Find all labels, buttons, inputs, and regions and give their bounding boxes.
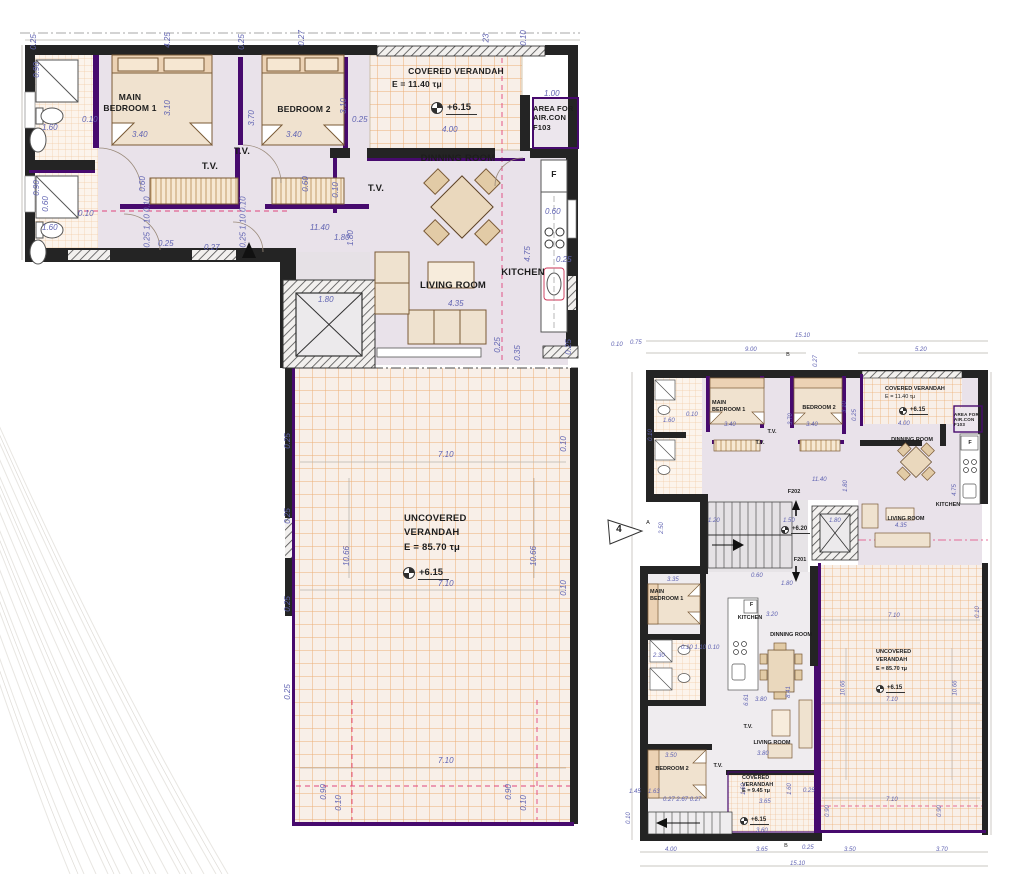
dim-label: 3.40	[132, 131, 148, 139]
left-plan-elevator-icon	[283, 280, 375, 368]
section-letter-a: A	[643, 520, 653, 527]
dim-label: 4.35	[448, 300, 464, 308]
dim-label: 7.10	[888, 613, 900, 619]
dim-label: 1.80	[781, 581, 793, 587]
right-plan-dim-lines	[632, 341, 991, 866]
sofa-icon	[375, 252, 486, 344]
right-plan-stairs-icon	[708, 502, 792, 568]
dim-label: 0.90	[937, 805, 943, 817]
dim-label: 3.40	[286, 131, 302, 139]
dim-label: 10.66	[343, 546, 351, 566]
dim-label: 1.80	[334, 234, 350, 242]
dim-label: 0.25	[352, 116, 368, 124]
dim-label: 0.25	[30, 34, 38, 50]
left-plan-bathroom-fixtures	[30, 60, 78, 264]
dim-label: 0.35	[514, 345, 522, 361]
dim-label: 8.41	[786, 686, 792, 698]
armchair-icon	[862, 504, 878, 528]
level-value: +6.15	[750, 817, 769, 825]
room-label-covered-verandah: COVERED VERANDAH	[885, 386, 963, 393]
dim-label: 4.00	[898, 421, 910, 427]
dim-label: 0.25	[238, 34, 246, 50]
dim-label: 7.10	[886, 797, 898, 803]
right-plan-walls	[640, 370, 988, 841]
level-icon	[403, 567, 415, 579]
right-plan-furniture-upper	[655, 378, 980, 547]
level-value: +6.15	[909, 407, 928, 415]
dim-label: 2.50	[659, 522, 665, 534]
dining-table-icon	[400, 145, 524, 269]
dim-label: 11.40	[812, 477, 827, 483]
dim-label: 0.27 2.67 0.27	[663, 797, 701, 803]
shower-icon	[655, 380, 675, 400]
stair-label-f202: F202	[781, 489, 807, 496]
dim-label: 3.50	[665, 753, 677, 759]
toilet-icon	[678, 646, 690, 655]
bed-icon	[648, 584, 700, 624]
dim-label: 3.50	[844, 847, 856, 853]
wardrobe-icon	[150, 178, 238, 204]
level-value: +6.15	[886, 685, 905, 693]
level-marker: +6.15	[740, 817, 769, 825]
dim-label: 1.80	[318, 296, 334, 304]
shower-icon	[650, 640, 672, 662]
dim-label: 1.80	[347, 230, 355, 246]
sofa-icon	[799, 700, 812, 748]
dim-label: 4.75	[952, 484, 958, 496]
dim-label: 0.10	[648, 429, 654, 441]
room-label-tv: T.V.	[748, 440, 772, 447]
right-plan-dims: 15.109.005.200.750.100.271.600.103.403.4…	[0, 0, 1024, 874]
room-label-main-bedroom-1: MAIN BEDROOM 1	[712, 400, 760, 413]
armchair-icon	[768, 744, 792, 758]
dim-label: 0.25 1.10 0.10	[144, 196, 152, 247]
left-plan-dims: 0.254.250.250.27230.101.000.901.600.103.…	[0, 0, 1024, 874]
bed-icon-bedroom2	[262, 55, 344, 145]
room-label-kitchen: KITCHEN	[928, 502, 968, 509]
dim-label: 10.66	[953, 680, 959, 695]
shower-icon	[36, 176, 78, 218]
dim-label: 1.60	[42, 124, 58, 132]
level-value: +6.15	[418, 567, 449, 580]
dim-label: 7.10	[438, 451, 454, 459]
dim-label: 0.25	[284, 433, 292, 449]
dim-label: 10.66	[841, 680, 847, 695]
dim-label: 23	[482, 34, 490, 43]
f201-arrow	[792, 566, 800, 582]
dim-label: 3.70	[788, 413, 794, 425]
toilet-icon	[36, 222, 63, 238]
room-label-aircon: AREA FOR AIR.CON F103	[533, 104, 585, 132]
dim-label: 0.60	[751, 573, 763, 579]
f202-arrow	[792, 500, 800, 516]
dim-label: 1.60	[42, 224, 58, 232]
dim-label: 0.25	[803, 788, 815, 794]
dim-label: 0.10	[520, 795, 528, 811]
fridge-icon	[961, 436, 978, 450]
level-icon	[781, 526, 789, 534]
dim-label: 0.25	[284, 684, 292, 700]
coffee-table-icon	[428, 262, 474, 288]
right-plan-elevator-icon	[812, 506, 858, 560]
room-label-living-room: LIVING ROOM	[398, 280, 508, 292]
dim-label: 0.90	[825, 805, 831, 817]
left-plan-labels: MAIN BEDROOM 1 BEDROOM 2 T.V. T.V. T.V. …	[0, 0, 1024, 874]
bed-icon	[710, 378, 764, 424]
washbasin-icon	[30, 128, 46, 152]
dim-label: 4.25	[164, 32, 172, 48]
room-label-tv: T.V.	[736, 724, 760, 731]
dim-label: 1.50	[783, 518, 795, 524]
dim-label: 3.40	[724, 422, 736, 428]
dim-label: 4.00	[442, 126, 458, 134]
shower-icon	[655, 440, 675, 460]
dim-label: 0.10	[560, 436, 568, 452]
dim-label: 0.10 1.10 0.10	[681, 645, 719, 651]
dim-label: 3.80	[757, 751, 769, 757]
dim-label: 0.90	[320, 784, 328, 800]
toilet-icon	[658, 406, 670, 415]
dim-label: 0.90	[33, 62, 41, 78]
wardrobe-icon	[272, 178, 344, 204]
dim-label: 0.10	[686, 412, 698, 418]
railing	[377, 348, 481, 357]
sink-icon	[963, 484, 976, 498]
room-label-bedroom-2: BEDROOM 2	[796, 405, 842, 412]
kitchen-counter	[541, 192, 567, 332]
room-label-bedroom-2: BEDROOM 2	[262, 104, 346, 115]
dim-label: 7.10	[438, 580, 454, 588]
left-plan-floors	[30, 50, 578, 824]
section-letter-b: B	[781, 843, 791, 850]
dim-label: 0.60	[302, 176, 310, 192]
floor-plan-canvas	[0, 0, 1024, 874]
room-label-tv: T.V.	[356, 183, 396, 195]
dim-label: 0.10	[560, 580, 568, 596]
dim-label: 1.00	[544, 90, 560, 98]
dim-label: 9.00	[745, 347, 757, 353]
sink-icon	[732, 664, 745, 680]
right-plan-floors	[646, 376, 982, 834]
room-label-living-room: LIVING ROOM	[742, 740, 802, 747]
stair-label-f201: F201	[787, 557, 813, 564]
room-label-covered-verandah: COVERED VERANDAH	[385, 66, 527, 77]
dim-label: 3.70	[248, 110, 256, 126]
room-label-covered-verandah: COVERED VERANDAH E = 9.45 τμ	[742, 775, 792, 795]
dim-label: 1.20	[708, 518, 720, 524]
dim-label: 1.80	[843, 480, 849, 492]
room-label-living-room: LIVING ROOM	[876, 516, 936, 523]
dim-label: 1.60	[663, 418, 675, 424]
dim-label: 1.80	[829, 518, 841, 524]
stove-icon	[545, 228, 564, 248]
fridge-label: F	[964, 440, 976, 447]
left-plan-furniture	[112, 55, 524, 357]
dim-label: 0.10	[520, 30, 528, 46]
coffee-table-icon	[886, 508, 914, 520]
dim-label: 15.10	[790, 861, 805, 867]
fridge-label: F	[746, 602, 757, 609]
level-value: +6.20	[791, 526, 810, 534]
kitchen-counter	[960, 434, 980, 504]
dim-label: 3.10	[340, 98, 348, 114]
toilet-icon	[658, 466, 670, 475]
dim-label: 7.10	[438, 757, 454, 765]
level-icon	[740, 817, 748, 825]
dim-label: 3.80	[755, 697, 767, 703]
level-marker-covered: +6.15	[431, 102, 477, 115]
bed-icon	[648, 750, 706, 798]
toilet-icon	[678, 674, 690, 683]
dim-label: 1.45	[629, 789, 641, 795]
dim-label: 15.10	[795, 333, 810, 339]
right-plan-entry-stairs-icon	[648, 812, 732, 834]
dim-label: 0.25	[852, 409, 858, 421]
fridge-icon	[744, 600, 757, 613]
dining-table-icon	[886, 432, 945, 491]
dim-label: 0.10	[78, 210, 94, 218]
dim-label: 3.10	[164, 100, 172, 116]
dim-label: 10.66	[530, 546, 538, 566]
right-plan-centerlines	[820, 540, 988, 806]
dim-label: 0.25	[284, 596, 292, 612]
level-marker: +6.15	[876, 685, 905, 693]
room-label-tv: T.V.	[190, 161, 230, 173]
level-marker-uncovered: +6.15	[403, 567, 449, 580]
dim-label: 1.60	[787, 783, 793, 795]
room-label-uncovered-verandah: UNCOVERED VERANDAH E = 85.70 τμ	[876, 648, 934, 673]
dim-label: 0.10	[335, 795, 343, 811]
covered-verandah-area: E = 11.40 τμ	[885, 394, 945, 401]
fridge-label: F	[547, 169, 561, 180]
left-plan	[20, 33, 580, 826]
room-label-main-bedroom-1: MAIN BEDROOM 1	[98, 92, 162, 113]
dim-label: 3.10	[842, 401, 848, 413]
covered-verandah-area: E = 11.40 τμ	[392, 79, 492, 90]
background-swoosh	[0, 0, 1024, 874]
room-label-dinning-room: DINNING ROOM	[760, 632, 822, 639]
shower-icon	[650, 668, 672, 690]
dim-label: 1.60	[741, 783, 747, 795]
floor-plan-page: { "colors":{"wall":"#242424","accent_pur…	[0, 0, 1024, 874]
dim-label: 0.25 1.10 0.10	[240, 196, 248, 247]
level-icon	[431, 102, 443, 114]
dim-label: 2.30	[653, 653, 665, 659]
dim-label: 0.75	[630, 340, 642, 346]
dim-label: 0.10	[82, 116, 98, 124]
left-plan-centerlines	[20, 33, 580, 820]
right-plan-furniture-lower	[648, 584, 812, 798]
dim-label: 4.35	[895, 523, 907, 529]
right-plan	[608, 341, 991, 866]
dim-label: 0.10	[975, 606, 981, 618]
level-marker-stairs: +6.20	[781, 526, 810, 534]
dim-label: 0.25	[158, 240, 174, 248]
kitchen-counter	[728, 598, 758, 690]
room-label-main-bedroom-1: MAIN BEDROOM 1	[650, 589, 698, 602]
room-label-tv: T.V.	[760, 429, 784, 436]
dim-label: 1.63	[648, 789, 660, 795]
dim-label: 3.60	[756, 828, 768, 834]
washbasin-icon	[30, 240, 46, 264]
room-label-tv: T.V.	[706, 763, 730, 770]
dim-label: 11.40	[310, 224, 329, 232]
dim-label: 0.25	[494, 337, 502, 353]
dim-label: 0.25	[556, 256, 572, 264]
shower-icon	[36, 60, 78, 102]
dim-label: 4.75	[524, 246, 532, 262]
dim-label: 7.10	[886, 697, 898, 703]
dim-label: 3.35	[667, 577, 679, 583]
level-value: +6.15	[446, 102, 477, 115]
left-plan-kitchen-fixtures	[541, 160, 567, 332]
dim-label: 0.27	[204, 244, 220, 252]
section-marker-number: 4	[612, 524, 626, 537]
bathroom-fixtures	[650, 640, 690, 690]
toilet-icon	[36, 108, 63, 124]
right-plan-labels: MAIN BEDROOM 1 BEDROOM 2 COVERED VERANDA…	[0, 0, 1024, 874]
room-label-aircon: AREA FOR AIR.CON F103	[954, 412, 984, 428]
wardrobe-icon	[714, 440, 760, 451]
section-letter-b: B	[783, 352, 793, 359]
sofa-icon	[875, 533, 930, 547]
level-marker: +6.15	[899, 407, 928, 415]
dim-label: 3.70	[936, 847, 948, 853]
left-plan-walls	[25, 45, 578, 824]
dim-label: 0.10	[611, 342, 623, 348]
room-label-tv: T.V.	[222, 146, 262, 158]
dim-label: 6.61	[744, 694, 750, 706]
dim-label: 0.90	[33, 180, 41, 196]
room-label-dinning-room: DINNING ROOM	[880, 437, 944, 444]
dim-label: 3.65	[759, 799, 771, 805]
bed-icon-main-bedroom	[112, 55, 212, 145]
sink-icon	[544, 268, 564, 300]
dining-table-icon	[760, 643, 802, 699]
dim-label: 4.00	[665, 847, 677, 853]
left-plan-accent-walls	[29, 55, 578, 826]
right-plan-accent-walls	[706, 374, 986, 833]
coffee-table-icon	[772, 710, 790, 736]
dim-label: 0.10	[626, 812, 632, 824]
dim-label: 0.60	[42, 196, 50, 212]
level-icon	[876, 685, 884, 693]
dim-label: 0.10	[332, 182, 340, 198]
entry-arrow	[242, 242, 256, 258]
room-label-kitchen: KITCHEN	[496, 267, 550, 279]
section-marker-triangle	[608, 520, 642, 544]
bathroom-fixtures	[655, 380, 675, 475]
dim-label: 0.90	[505, 784, 513, 800]
dim-label: 0.60	[139, 176, 147, 192]
dim-label: 0.60	[545, 208, 561, 216]
dim-label: 0.27	[298, 30, 306, 46]
dim-label: 5.20	[915, 347, 927, 353]
dim-label: 0.25	[284, 508, 292, 524]
dim-label: 0.25	[802, 845, 814, 851]
room-label-bedroom-2: BEDROOM 2	[646, 766, 698, 773]
room-label-kitchen: KITCHEN	[730, 615, 770, 622]
dim-label: 3.20	[766, 612, 778, 618]
left-plan-door-arcs	[99, 145, 523, 252]
dim-label: 3.65	[756, 847, 768, 853]
bed-icon	[794, 378, 842, 424]
wardrobe-icon	[800, 440, 840, 451]
dim-label: 0.27	[813, 355, 819, 367]
room-label-dinning-room: DINNING ROOM	[398, 153, 518, 165]
fridge-icon	[541, 160, 567, 192]
dim-label: 0.25	[565, 339, 573, 355]
level-icon	[899, 407, 907, 415]
dim-label: 3.40	[806, 422, 818, 428]
room-label-uncovered-verandah: UNCOVERED VERANDAH E = 85.70 τμ	[404, 512, 514, 555]
left-plan-dim-lines	[22, 40, 580, 768]
